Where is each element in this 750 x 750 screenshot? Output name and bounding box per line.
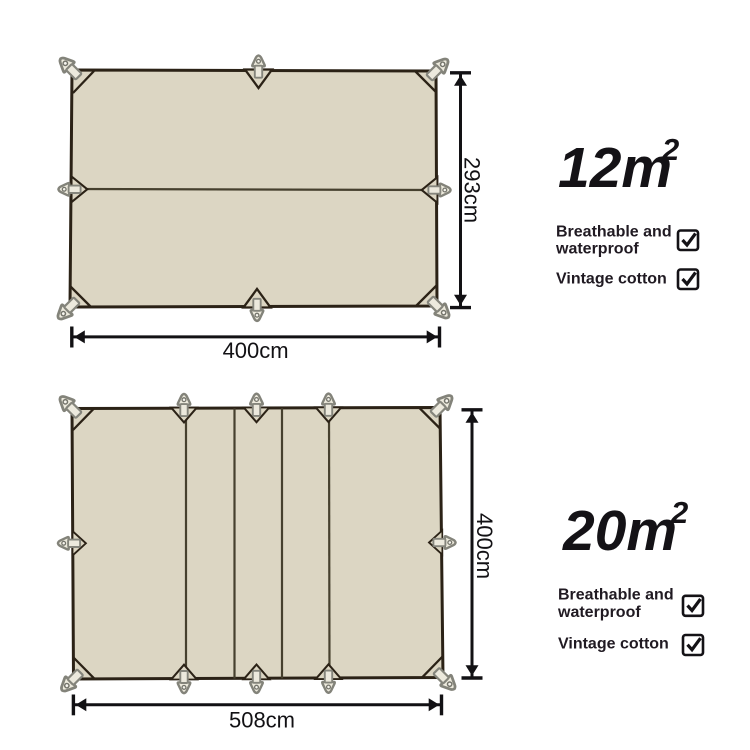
svg-text:Breathable and: Breathable and	[556, 224, 672, 241]
svg-text:400cm: 400cm	[223, 338, 289, 363]
svg-text:Vintage cotton: Vintage cotton	[558, 636, 669, 653]
svg-text:400cm: 400cm	[472, 513, 497, 579]
svg-text:Breathable and: Breathable and	[558, 587, 674, 604]
svg-text:20m: 20m	[562, 499, 677, 563]
svg-text:293cm: 293cm	[460, 157, 485, 223]
svg-text:waterproof: waterproof	[555, 241, 639, 258]
svg-text:12m: 12m	[558, 136, 672, 200]
svg-text:Vintage cotton: Vintage cotton	[556, 271, 667, 288]
svg-text:2: 2	[661, 132, 679, 167]
svg-text:508cm: 508cm	[229, 708, 295, 733]
svg-text:2: 2	[670, 495, 688, 530]
svg-text:waterproof: waterproof	[557, 604, 641, 621]
